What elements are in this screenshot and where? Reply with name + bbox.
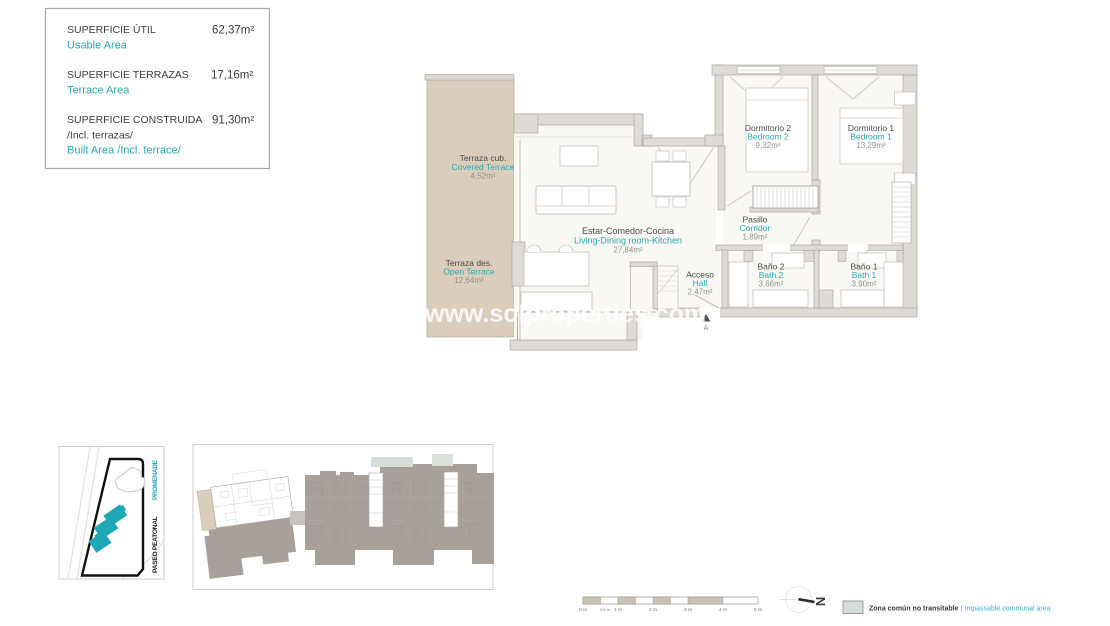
svg-text:PASEO PEATONAL: PASEO PEATONAL [152,516,159,573]
svg-text:Bath 1: Bath 1 [852,270,877,280]
svg-text:|: | [961,606,963,613]
svg-text:1,89m²: 1,89m² [743,233,768,242]
svg-text:2 m: 2 m [649,607,657,613]
svg-text:9,32m²: 9,32m² [756,141,781,150]
svg-text:Bedroom 2: Bedroom 2 [747,132,789,142]
svg-text:Living-Dining room-Kitchen: Living-Dining room-Kitchen [574,236,682,246]
svg-text:91,30m²: 91,30m² [212,115,254,127]
svg-text:Corridor: Corridor [740,223,771,233]
svg-text:Impassable communal area: Impassable communal area [965,606,1051,613]
svg-text:/Incl. terrazas/: /Incl. terrazas/ [67,130,133,142]
svg-text:Bath 2: Bath 2 [759,270,784,280]
svg-text:2,47m²: 2,47m² [688,288,713,297]
svg-text:Terrace Area: Terrace Area [67,85,130,97]
svg-text:3,90m²: 3,90m² [852,280,877,289]
svg-text:Zona común no transitable: Zona común no transitable [869,606,959,613]
svg-text:Built Area /Incl. terrace/: Built Area /Incl. terrace/ [67,145,182,157]
svg-text:3,66m²: 3,66m² [759,280,784,289]
svg-text:www.solproperties.com: www.solproperties.com [424,300,706,328]
svg-text:1 m: 1 m [614,607,622,613]
svg-text:Estar-Comedor-Cocina: Estar-Comedor-Cocina [582,226,674,236]
svg-text:SUPERFICIE TERRAZAS: SUPERFICIE TERRAZAS [67,69,189,81]
svg-text:12,64m²: 12,64m² [454,276,484,285]
svg-text:0 m: 0 m [579,607,587,613]
svg-text:SUPERFICIE ÚTIL: SUPERFICIE ÚTIL [67,23,156,36]
svg-text:Bedroom 1: Bedroom 1 [850,132,892,142]
svg-text:SUPERFICIE CONSTRUIDA: SUPERFICIE CONSTRUIDA [67,114,202,126]
svg-text:17,16m²: 17,16m² [211,70,253,82]
svg-text:0,5 m: 0,5 m [600,608,610,612]
svg-text:3 m: 3 m [684,607,692,613]
svg-text:13,29m²: 13,29m² [856,141,886,150]
svg-text:4,52m²: 4,52m² [471,172,496,181]
svg-text:62,37m²: 62,37m² [212,25,254,37]
svg-text:5 m: 5 m [754,607,762,613]
svg-text:Hall: Hall [693,278,708,288]
svg-text:27,84m²: 27,84m² [613,246,643,255]
svg-text:Usable Area: Usable Area [67,40,128,52]
svg-text:N: N [813,597,828,606]
svg-text:PROMENADE: PROMENADE [152,459,159,500]
svg-text:4 m: 4 m [719,607,727,613]
svg-text:Covered Terrace: Covered Terrace [452,162,515,172]
svg-text:Open Terrace: Open Terrace [443,267,495,277]
